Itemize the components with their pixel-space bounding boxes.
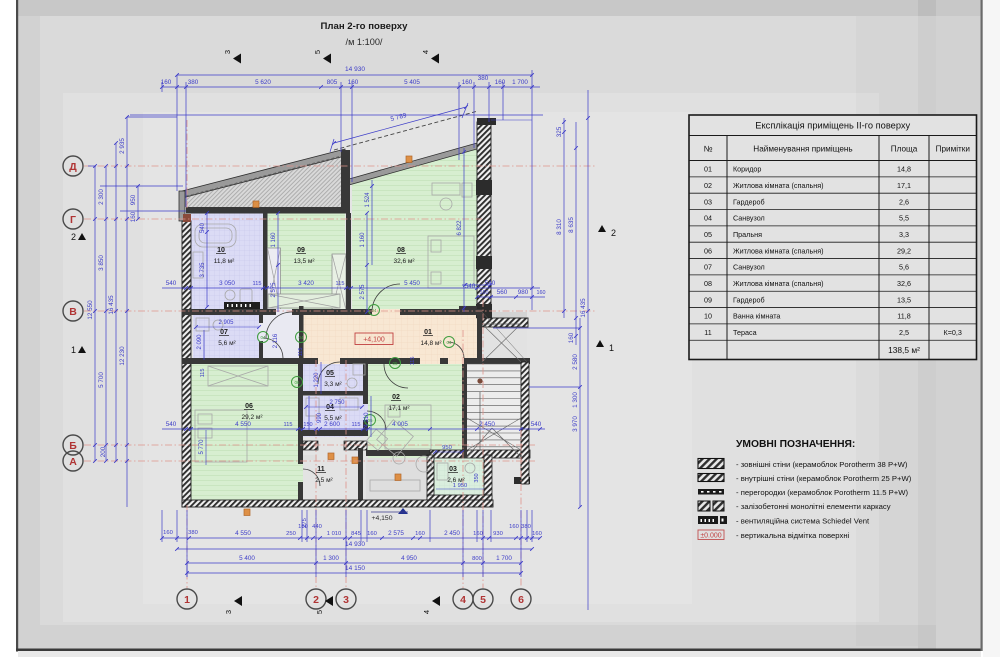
- svg-text:03: 03: [449, 466, 457, 473]
- svg-text:2 580: 2 580: [572, 354, 579, 370]
- svg-text:540: 540: [166, 280, 177, 287]
- svg-text:2 935: 2 935: [119, 138, 126, 154]
- svg-text:380: 380: [188, 79, 199, 86]
- svg-text:2 575: 2 575: [388, 530, 404, 537]
- svg-text:6: 6: [518, 594, 524, 606]
- svg-text:1 010: 1 010: [327, 531, 342, 537]
- svg-text:3 735: 3 735: [200, 262, 206, 278]
- svg-text:Гардероб: Гардероб: [733, 295, 765, 304]
- svg-text:2 575: 2 575: [360, 284, 366, 300]
- svg-text:160: 160: [568, 332, 575, 343]
- svg-text:Г: Г: [70, 214, 76, 226]
- svg-text:11,8: 11,8: [897, 312, 910, 321]
- svg-text:Найменування приміщень: Найменування приміщень: [753, 145, 852, 154]
- svg-text:5 770: 5 770: [199, 439, 205, 455]
- svg-text:160: 160: [298, 524, 308, 530]
- svg-text:+4,150: +4,150: [372, 515, 393, 522]
- svg-text:160: 160: [130, 211, 137, 222]
- svg-text:160: 160: [495, 79, 506, 86]
- svg-text:1 160: 1 160: [360, 232, 366, 248]
- svg-text:№: №: [704, 145, 713, 154]
- svg-text:540: 540: [531, 421, 542, 428]
- svg-text:29,2 м²: 29,2 м²: [241, 414, 263, 421]
- svg-text:800: 800: [472, 556, 482, 562]
- svg-text:14 930: 14 930: [345, 541, 365, 548]
- svg-text:02: 02: [704, 181, 712, 190]
- svg-text:5 700: 5 700: [98, 372, 105, 388]
- svg-text:Д: Д: [69, 161, 77, 173]
- svg-text:32,6 м²: 32,6 м²: [393, 258, 415, 265]
- svg-text:250: 250: [286, 531, 296, 537]
- svg-text:3 420: 3 420: [298, 280, 314, 287]
- svg-text:12 550: 12 550: [87, 300, 94, 320]
- svg-text:32,6: 32,6: [897, 279, 911, 288]
- svg-text:А: А: [69, 456, 77, 468]
- svg-text:3: 3: [343, 594, 349, 606]
- svg-text:2 450: 2 450: [444, 530, 460, 537]
- svg-text:- залізобетонні монолітні елем: - залізобетонні монолітні елементи карка…: [736, 502, 891, 511]
- svg-text:115: 115: [284, 422, 293, 428]
- svg-text:5: 5: [315, 610, 324, 614]
- svg-text:540: 540: [166, 421, 177, 428]
- svg-text:160: 160: [348, 79, 359, 86]
- svg-text:2 300: 2 300: [98, 189, 105, 205]
- svg-text:/м 1:100/: /м 1:100/: [346, 37, 383, 47]
- svg-text:Житлова кімната (спальня): Житлова кімната (спальня): [733, 181, 824, 190]
- svg-text:06: 06: [704, 246, 712, 255]
- svg-text:3,3: 3,3: [899, 230, 909, 239]
- svg-text:4: 4: [421, 50, 430, 54]
- svg-text:05: 05: [326, 370, 334, 377]
- svg-text:1 160: 1 160: [271, 232, 277, 248]
- svg-text:Експлікація приміщень ІІ-го по: Експлікація приміщень ІІ-го поверху: [755, 121, 910, 131]
- svg-text:950: 950: [130, 194, 137, 205]
- svg-text:4 550: 4 550: [235, 421, 251, 428]
- svg-text:2 090: 2 090: [197, 334, 203, 350]
- svg-text:13,5 м²: 13,5 м²: [293, 258, 315, 265]
- svg-text:8 310: 8 310: [556, 219, 563, 235]
- svg-text:380: 380: [188, 530, 198, 536]
- svg-text:2,6: 2,6: [899, 197, 909, 206]
- svg-text:05: 05: [704, 230, 712, 239]
- svg-text:1 300: 1 300: [323, 555, 339, 562]
- svg-text:Ванна кімната: Ванна кімната: [733, 312, 780, 321]
- svg-text:11: 11: [317, 466, 325, 473]
- svg-text:14 150: 14 150: [345, 565, 365, 572]
- svg-text:4 005: 4 005: [392, 421, 408, 428]
- svg-text:Пральня: Пральня: [733, 230, 762, 239]
- svg-text:Гардероб: Гардероб: [733, 197, 765, 206]
- svg-text:17,1 м²: 17,1 м²: [388, 405, 410, 412]
- svg-text:1 700: 1 700: [496, 555, 512, 562]
- svg-text:160: 160: [161, 79, 172, 86]
- svg-text:380: 380: [521, 524, 531, 530]
- svg-text:2,5 м²: 2,5 м²: [315, 477, 333, 484]
- svg-text:160: 160: [415, 531, 425, 537]
- svg-text:06: 06: [245, 403, 253, 410]
- svg-text:Площа: Площа: [891, 145, 918, 154]
- svg-text:09: 09: [704, 295, 712, 304]
- svg-text:950: 950: [442, 445, 452, 451]
- svg-text:5 450: 5 450: [404, 280, 420, 287]
- svg-text:11: 11: [704, 328, 711, 337]
- svg-text:Санвузол: Санвузол: [733, 214, 765, 223]
- svg-text:16 435: 16 435: [108, 295, 115, 315]
- svg-text:1 524: 1 524: [365, 192, 371, 208]
- svg-text:03: 03: [704, 197, 712, 206]
- svg-text:- вертикальна відмітка поверхн: - вертикальна відмітка поверхні: [736, 531, 850, 540]
- svg-text:09: 09: [297, 247, 305, 254]
- svg-text:04: 04: [260, 335, 266, 340]
- svg-text:540: 540: [485, 280, 496, 287]
- svg-text:115: 115: [410, 357, 416, 366]
- svg-text:07: 07: [220, 329, 228, 336]
- svg-text:4: 4: [460, 594, 466, 606]
- svg-text:160: 160: [473, 531, 483, 537]
- svg-text:02: 02: [392, 394, 400, 401]
- svg-text:04: 04: [704, 214, 712, 223]
- svg-text:845: 845: [351, 531, 361, 537]
- svg-text:1: 1: [71, 345, 76, 355]
- svg-text:350: 350: [474, 473, 480, 482]
- svg-text:2: 2: [313, 594, 319, 606]
- svg-text:5: 5: [313, 50, 322, 54]
- svg-text:2 600: 2 600: [324, 421, 340, 428]
- svg-text:2: 2: [611, 228, 616, 238]
- svg-text:8 635: 8 635: [568, 217, 575, 233]
- svg-text:2 575: 2 575: [271, 282, 277, 298]
- svg-text:560: 560: [497, 289, 508, 296]
- svg-text:2 450: 2 450: [479, 421, 495, 428]
- svg-text:5 405: 5 405: [404, 79, 420, 86]
- svg-text:13,5: 13,5: [897, 295, 911, 304]
- svg-text:07: 07: [704, 263, 712, 272]
- svg-text:1 300: 1 300: [572, 392, 579, 408]
- svg-text:1 220: 1 220: [314, 372, 320, 388]
- svg-text:01: 01: [704, 165, 712, 174]
- svg-text:3 050: 3 050: [219, 280, 235, 287]
- svg-text:2,5: 2,5: [899, 328, 909, 337]
- svg-text:380: 380: [478, 75, 489, 82]
- svg-text:1 950: 1 950: [453, 483, 468, 489]
- svg-text:4 550: 4 550: [235, 530, 251, 537]
- svg-text:План 2-го поверху: План 2-го поверху: [321, 21, 409, 32]
- svg-text:4: 4: [422, 610, 431, 614]
- svg-text:5: 5: [480, 594, 486, 606]
- svg-text:10: 10: [704, 312, 712, 321]
- svg-text:12 230: 12 230: [119, 346, 126, 366]
- svg-text:- перегородки (керамоблок Poro: - перегородки (керамоблок Porotherm 11.5…: [736, 488, 908, 497]
- svg-text:В: В: [69, 306, 77, 318]
- svg-text:3 970: 3 970: [572, 416, 579, 432]
- svg-text:Примітки: Примітки: [936, 145, 970, 154]
- svg-text:1: 1: [609, 343, 614, 353]
- svg-text:3,3 м²: 3,3 м²: [324, 381, 342, 388]
- svg-text:±0.000: ±0.000: [700, 533, 721, 540]
- svg-text:1 700: 1 700: [512, 79, 528, 86]
- svg-text:160: 160: [462, 79, 473, 86]
- svg-text:04: 04: [298, 335, 304, 340]
- svg-text:5,5: 5,5: [899, 214, 909, 223]
- svg-text:440: 440: [312, 524, 322, 530]
- svg-text:- внутрішні стіни (керамоблок: - внутрішні стіни (керамоблок Porotherm …: [736, 474, 912, 483]
- svg-text:2 905: 2 905: [218, 320, 234, 326]
- svg-text:6 822: 6 822: [457, 220, 463, 236]
- svg-text:05: 05: [392, 361, 398, 366]
- svg-text:06: 06: [294, 380, 300, 385]
- svg-text:Б: Б: [69, 440, 77, 452]
- svg-text:325: 325: [556, 126, 563, 137]
- svg-text:160: 160: [480, 290, 489, 296]
- svg-text:2 116: 2 116: [273, 333, 279, 348]
- svg-text:3: 3: [223, 50, 232, 54]
- svg-text:2 750: 2 750: [329, 400, 345, 406]
- svg-text:1: 1: [184, 594, 190, 606]
- svg-text:160: 160: [509, 524, 519, 530]
- svg-text:17,1: 17,1: [897, 181, 911, 190]
- svg-text:115: 115: [336, 281, 345, 287]
- svg-text:160: 160: [367, 531, 377, 537]
- svg-text:3: 3: [224, 610, 233, 614]
- svg-text:08: 08: [397, 247, 405, 254]
- svg-text:14,8: 14,8: [897, 165, 911, 174]
- svg-text:Тераса: Тераса: [733, 328, 757, 337]
- svg-text:5 400: 5 400: [239, 555, 255, 562]
- svg-text:2: 2: [71, 232, 76, 242]
- svg-text:Житлова кімната (спальня): Житлова кімната (спальня): [733, 246, 824, 255]
- svg-text:14,8 м²: 14,8 м²: [420, 340, 442, 347]
- svg-text:115: 115: [200, 369, 206, 378]
- svg-text:10: 10: [217, 247, 225, 254]
- svg-text:150: 150: [303, 422, 312, 428]
- svg-text:930: 930: [493, 531, 503, 537]
- svg-text:01: 01: [424, 329, 432, 336]
- svg-text:3 850: 3 850: [98, 255, 105, 271]
- svg-text:990: 990: [317, 412, 323, 423]
- svg-text:08: 08: [704, 279, 712, 288]
- svg-text:115: 115: [352, 422, 361, 428]
- svg-text:160: 160: [163, 530, 173, 536]
- svg-text:11,8 м²: 11,8 м²: [214, 258, 235, 265]
- svg-text:115: 115: [253, 281, 262, 287]
- svg-text:УМОВНІ ПОЗНАЧЕННЯ:: УМОВНІ ПОЗНАЧЕННЯ:: [736, 439, 855, 450]
- svg-text:Санвузол: Санвузол: [733, 263, 765, 272]
- svg-text:540: 540: [200, 222, 206, 233]
- svg-text:5,6: 5,6: [899, 263, 909, 272]
- svg-text:5,6 м²: 5,6 м²: [218, 340, 236, 347]
- svg-text:5 620: 5 620: [255, 79, 271, 86]
- svg-text:200: 200: [100, 446, 107, 457]
- svg-text:29,2: 29,2: [897, 246, 911, 255]
- svg-text:16 435: 16 435: [580, 298, 587, 318]
- svg-text:+4,100: +4,100: [363, 337, 385, 344]
- svg-text:4 310: 4 310: [364, 412, 370, 428]
- svg-text:04: 04: [446, 340, 452, 345]
- svg-text:4 950: 4 950: [401, 555, 417, 562]
- svg-text:Житлова кімната (спальня): Житлова кімната (спальня): [733, 279, 824, 288]
- svg-text:805: 805: [327, 79, 338, 86]
- svg-text:- зовнішні стіни (керамоблок P: - зовнішні стіни (керамоблок Porotherm 3…: [736, 460, 908, 469]
- svg-text:138,5 м²: 138,5 м²: [888, 345, 920, 355]
- svg-text:160: 160: [532, 531, 542, 537]
- svg-text:- вентиляційна система Schiede: - вентиляційна система Schiedel Vent: [736, 516, 870, 525]
- svg-text:14 930: 14 930: [345, 66, 365, 73]
- svg-text:Коридор: Коридор: [733, 165, 761, 174]
- svg-text:К=0,3: К=0,3: [944, 328, 962, 337]
- svg-text:115: 115: [298, 348, 304, 357]
- svg-text:160: 160: [537, 290, 546, 296]
- svg-text:980: 980: [518, 289, 529, 296]
